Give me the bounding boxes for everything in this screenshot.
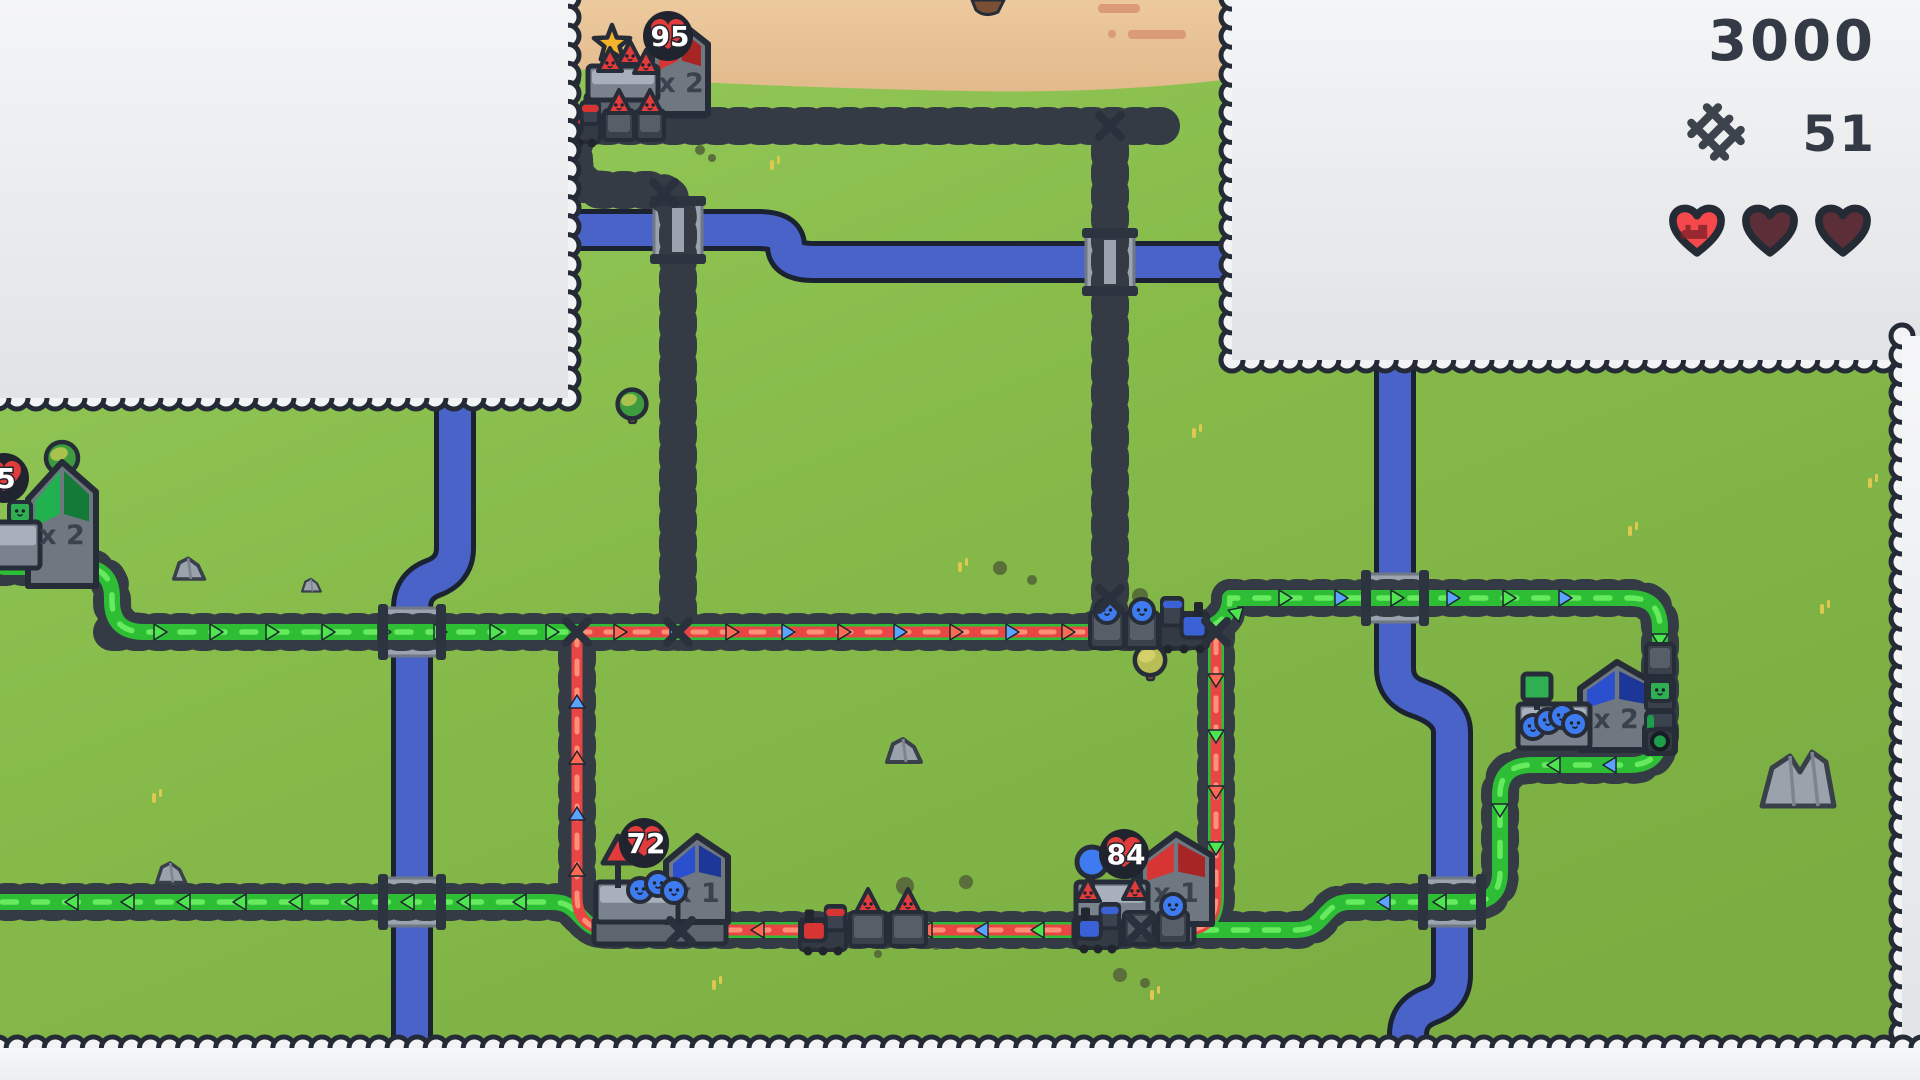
passenger-circle (662, 879, 686, 903)
game-screen: { "hud": { "money": "3000", "rails": "51… (0, 0, 1920, 1080)
passenger-square (1649, 681, 1671, 701)
station-counter-badge: 95 (643, 11, 693, 61)
train-green-east[interactable] (1644, 644, 1676, 754)
rail-track-icon (1674, 90, 1758, 178)
station-count: 72 (627, 827, 666, 860)
cloud-region (0, 1048, 1920, 1080)
station-counter-badge: 72 (619, 818, 669, 868)
lives-row (1556, 200, 1876, 264)
life-heart-full-icon (1664, 200, 1730, 264)
station-multiplier: x 2 (39, 520, 85, 551)
passenger-circle (1563, 712, 1587, 736)
cloud-region (0, 0, 568, 398)
station-count: 95 (651, 20, 690, 53)
station-multiplier: x 2 (1593, 704, 1639, 735)
hud: 3000 51 (1556, 0, 1920, 264)
station-multiplier: x 2 (658, 68, 704, 99)
passenger-square (9, 502, 31, 522)
station-counter-badge: 84 (1099, 829, 1149, 879)
station-count: 84 (1107, 838, 1146, 871)
life-heart-empty-icon (1737, 200, 1803, 264)
money-counter: 3000 (1556, 14, 1876, 70)
cloud-region (1902, 336, 1920, 1070)
rail-counter: 51 (1556, 90, 1876, 178)
passenger-circle (1130, 599, 1154, 623)
rail-count-value: 51 (1802, 105, 1876, 163)
passenger-circle (1161, 894, 1185, 918)
square-sign-icon (1523, 674, 1551, 700)
life-heart-empty-icon (1810, 200, 1876, 264)
station-count: 5 (0, 462, 16, 495)
